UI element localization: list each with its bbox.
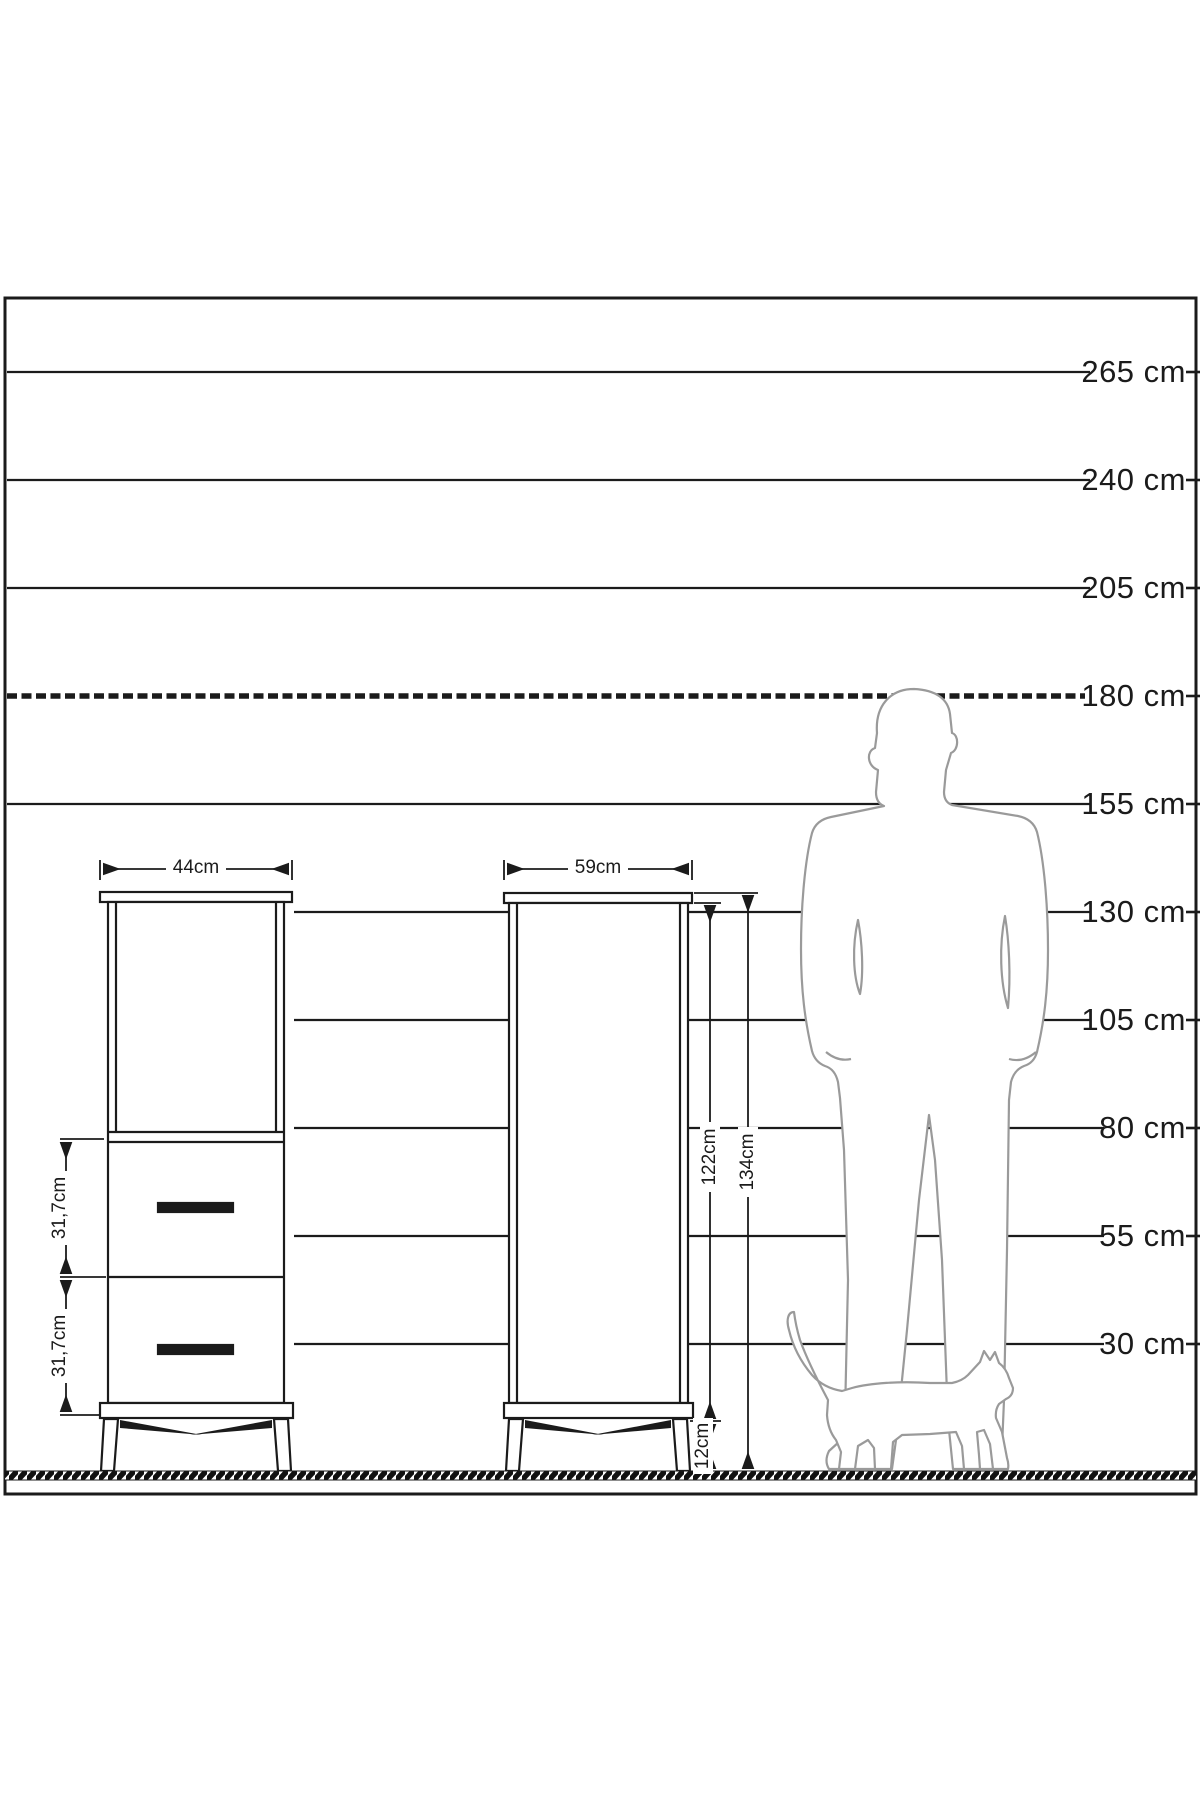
left-cabinet-legs — [101, 1419, 291, 1471]
scale-label-180: 180 cm — [1016, 677, 1186, 715]
right-cabinet-body-height-label: 122cm — [700, 1122, 720, 1192]
scale-label-130: 130 cm — [1016, 893, 1186, 931]
right-cabinet-total-height-label: 134cm — [738, 1127, 758, 1197]
drawer-handle-top — [158, 1203, 233, 1212]
left-cabinet-drawer-bottom-height-label: 31,7cm — [50, 1309, 70, 1383]
right-cabinet-width-label: 59cm — [568, 858, 628, 878]
label-ticks — [1186, 372, 1200, 1344]
left-cabinet-plinth — [100, 1403, 293, 1418]
dimension-diagram: 265 cm 240 cm 205 cm 180 cm 155 cm 130 c… — [0, 0, 1200, 1800]
scale-label-105: 105 cm — [1016, 1001, 1186, 1039]
man-silhouette — [801, 689, 1048, 1469]
drawer-handle-bottom — [158, 1345, 233, 1354]
left-cabinet-drawer-top-height-label: 31,7cm — [50, 1171, 70, 1245]
scale-label-30: 30 cm — [1016, 1325, 1186, 1363]
scale-label-80: 80 cm — [1016, 1109, 1186, 1147]
right-cabinet-legs — [506, 1419, 690, 1471]
right-cabinet-body — [509, 903, 688, 1403]
right-cabinet-leg-height-label: 12cm — [693, 1418, 713, 1474]
scale-label-205: 205 cm — [1016, 569, 1186, 607]
left-cabinet — [100, 892, 293, 1471]
right-cabinet — [504, 893, 693, 1471]
scale-label-265: 265 cm — [1016, 353, 1186, 391]
right-cabinet-top-panel — [504, 893, 692, 903]
left-cabinet-body — [108, 902, 284, 1403]
left-cabinet-width-label: 44cm — [166, 858, 226, 878]
scale-label-155: 155 cm — [1016, 785, 1186, 823]
ground-line — [5, 1471, 1196, 1480]
scale-label-55: 55 cm — [1016, 1217, 1186, 1255]
left-cabinet-top-panel — [100, 892, 292, 902]
scale-label-240: 240 cm — [1016, 461, 1186, 499]
right-cabinet-plinth — [504, 1403, 693, 1418]
